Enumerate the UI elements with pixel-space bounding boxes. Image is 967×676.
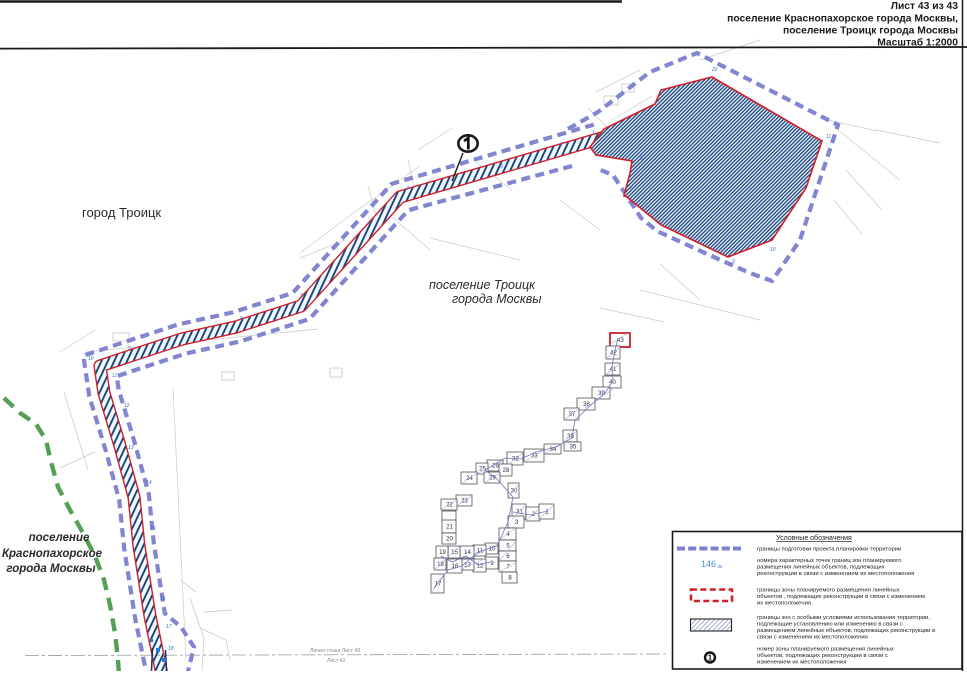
svg-text:13: 13 <box>128 445 134 451</box>
svg-text:35: 35 <box>570 445 577 451</box>
svg-text:объектов, подлежащих реконстру: объектов, подлежащих реконструкции в свя… <box>757 653 888 659</box>
svg-text:Лист 42: Лист 42 <box>327 658 346 664</box>
svg-text:36: 36 <box>567 434 574 440</box>
svg-text:номера характерных точек грани: номера характерных точек границ зон план… <box>757 558 902 564</box>
svg-text:реконструкции в связи с измене: реконструкции в связи с изменением их ме… <box>757 571 914 577</box>
svg-text:Условные обозначения: Условные обозначения <box>776 534 852 542</box>
svg-text:21: 21 <box>446 525 453 531</box>
svg-text:связи с изменением их местопол: связи с изменением их местоположения <box>757 635 868 641</box>
svg-text:поселение: поселение <box>29 532 90 544</box>
svg-text:подлежащие установлению или из: подлежащие установлению или изменению в … <box>757 622 903 628</box>
svg-text:изменением их местоположения: изменением их местоположения <box>757 660 846 666</box>
svg-text:их местоположения: их местоположения <box>757 601 811 607</box>
svg-text:37: 37 <box>569 412 576 418</box>
svg-text:2: 2 <box>559 142 563 148</box>
svg-text:14: 14 <box>146 480 152 486</box>
svg-text:10: 10 <box>770 247 776 253</box>
svg-text:Лист 43 из 43: Лист 43 из 43 <box>891 1 959 12</box>
svg-text:11: 11 <box>112 373 117 379</box>
svg-text:города Москвы: города Москвы <box>6 563 95 575</box>
svg-text:19: 19 <box>439 550 446 556</box>
svg-text:14: 14 <box>464 550 471 556</box>
svg-text:41: 41 <box>610 367 617 373</box>
svg-text:18: 18 <box>168 646 174 652</box>
svg-text:5: 5 <box>640 156 643 162</box>
svg-text:город Троицк: город Троицк <box>82 205 161 220</box>
svg-text:Краснопахорское: Краснопахорское <box>2 548 103 560</box>
svg-text:15: 15 <box>150 526 156 532</box>
svg-text:границы зоны планируемого разм: границы зоны планируемого размещения лин… <box>757 587 900 594</box>
svg-text:8: 8 <box>240 316 243 322</box>
svg-text:11: 11 <box>826 134 831 140</box>
svg-text:4: 4 <box>406 186 409 192</box>
svg-text:номер зоны планируемого размещ: номер зоны планируемого размещения линей… <box>757 646 894 653</box>
svg-text:22: 22 <box>711 67 718 73</box>
svg-text:17: 17 <box>166 624 172 630</box>
svg-text:Линия стыка Лист 43: Линия стыка Лист 43 <box>310 648 360 654</box>
svg-text:12: 12 <box>124 403 130 409</box>
svg-text:1: 1 <box>708 654 713 663</box>
svg-text:18: 18 <box>437 562 444 568</box>
svg-text:границы подготовки проекта пла: границы подготовки проекта планировки те… <box>757 547 901 553</box>
svg-text:10: 10 <box>88 356 94 362</box>
svg-text:города Москвы: города Москвы <box>452 292 541 306</box>
svg-text:поселение Троицк города Москвы: поселение Троицк города Москвы <box>783 26 958 37</box>
svg-text:3: 3 <box>500 164 503 170</box>
svg-text:поселение Краснопахорское горо: поселение Краснопахорское города Москвы, <box>727 14 958 25</box>
svg-text:Масштаб 1:2000: Масштаб 1:2000 <box>877 37 958 49</box>
svg-text:28: 28 <box>503 468 510 474</box>
svg-text:размещения линейных объектов,: размещения линейных объектов, подлежащих <box>757 564 885 571</box>
svg-text:9: 9 <box>128 346 131 352</box>
svg-text:объектов , подлежащих реконстр: объектов , подлежащих реконструкции в св… <box>757 594 925 600</box>
svg-text:16: 16 <box>160 596 166 602</box>
svg-text:22: 22 <box>446 503 453 509</box>
svg-text:поселение Троицк: поселение Троицк <box>429 278 536 292</box>
svg-text:24: 24 <box>466 476 473 482</box>
svg-text:размещением линейных объектов,: размещением линейных объектов, подлежащи… <box>757 627 935 634</box>
svg-text:границы зон с особыми условиям: границы зон с особыми условиями использо… <box>757 615 930 621</box>
svg-text:23: 23 <box>461 499 468 505</box>
svg-text:20: 20 <box>446 537 453 543</box>
svg-text:1: 1 <box>592 130 595 136</box>
svg-text:7: 7 <box>300 293 303 299</box>
svg-text:29: 29 <box>489 476 496 482</box>
svg-text:32: 32 <box>512 457 519 463</box>
svg-text:6: 6 <box>630 186 633 192</box>
svg-text:9: 9 <box>732 259 735 265</box>
